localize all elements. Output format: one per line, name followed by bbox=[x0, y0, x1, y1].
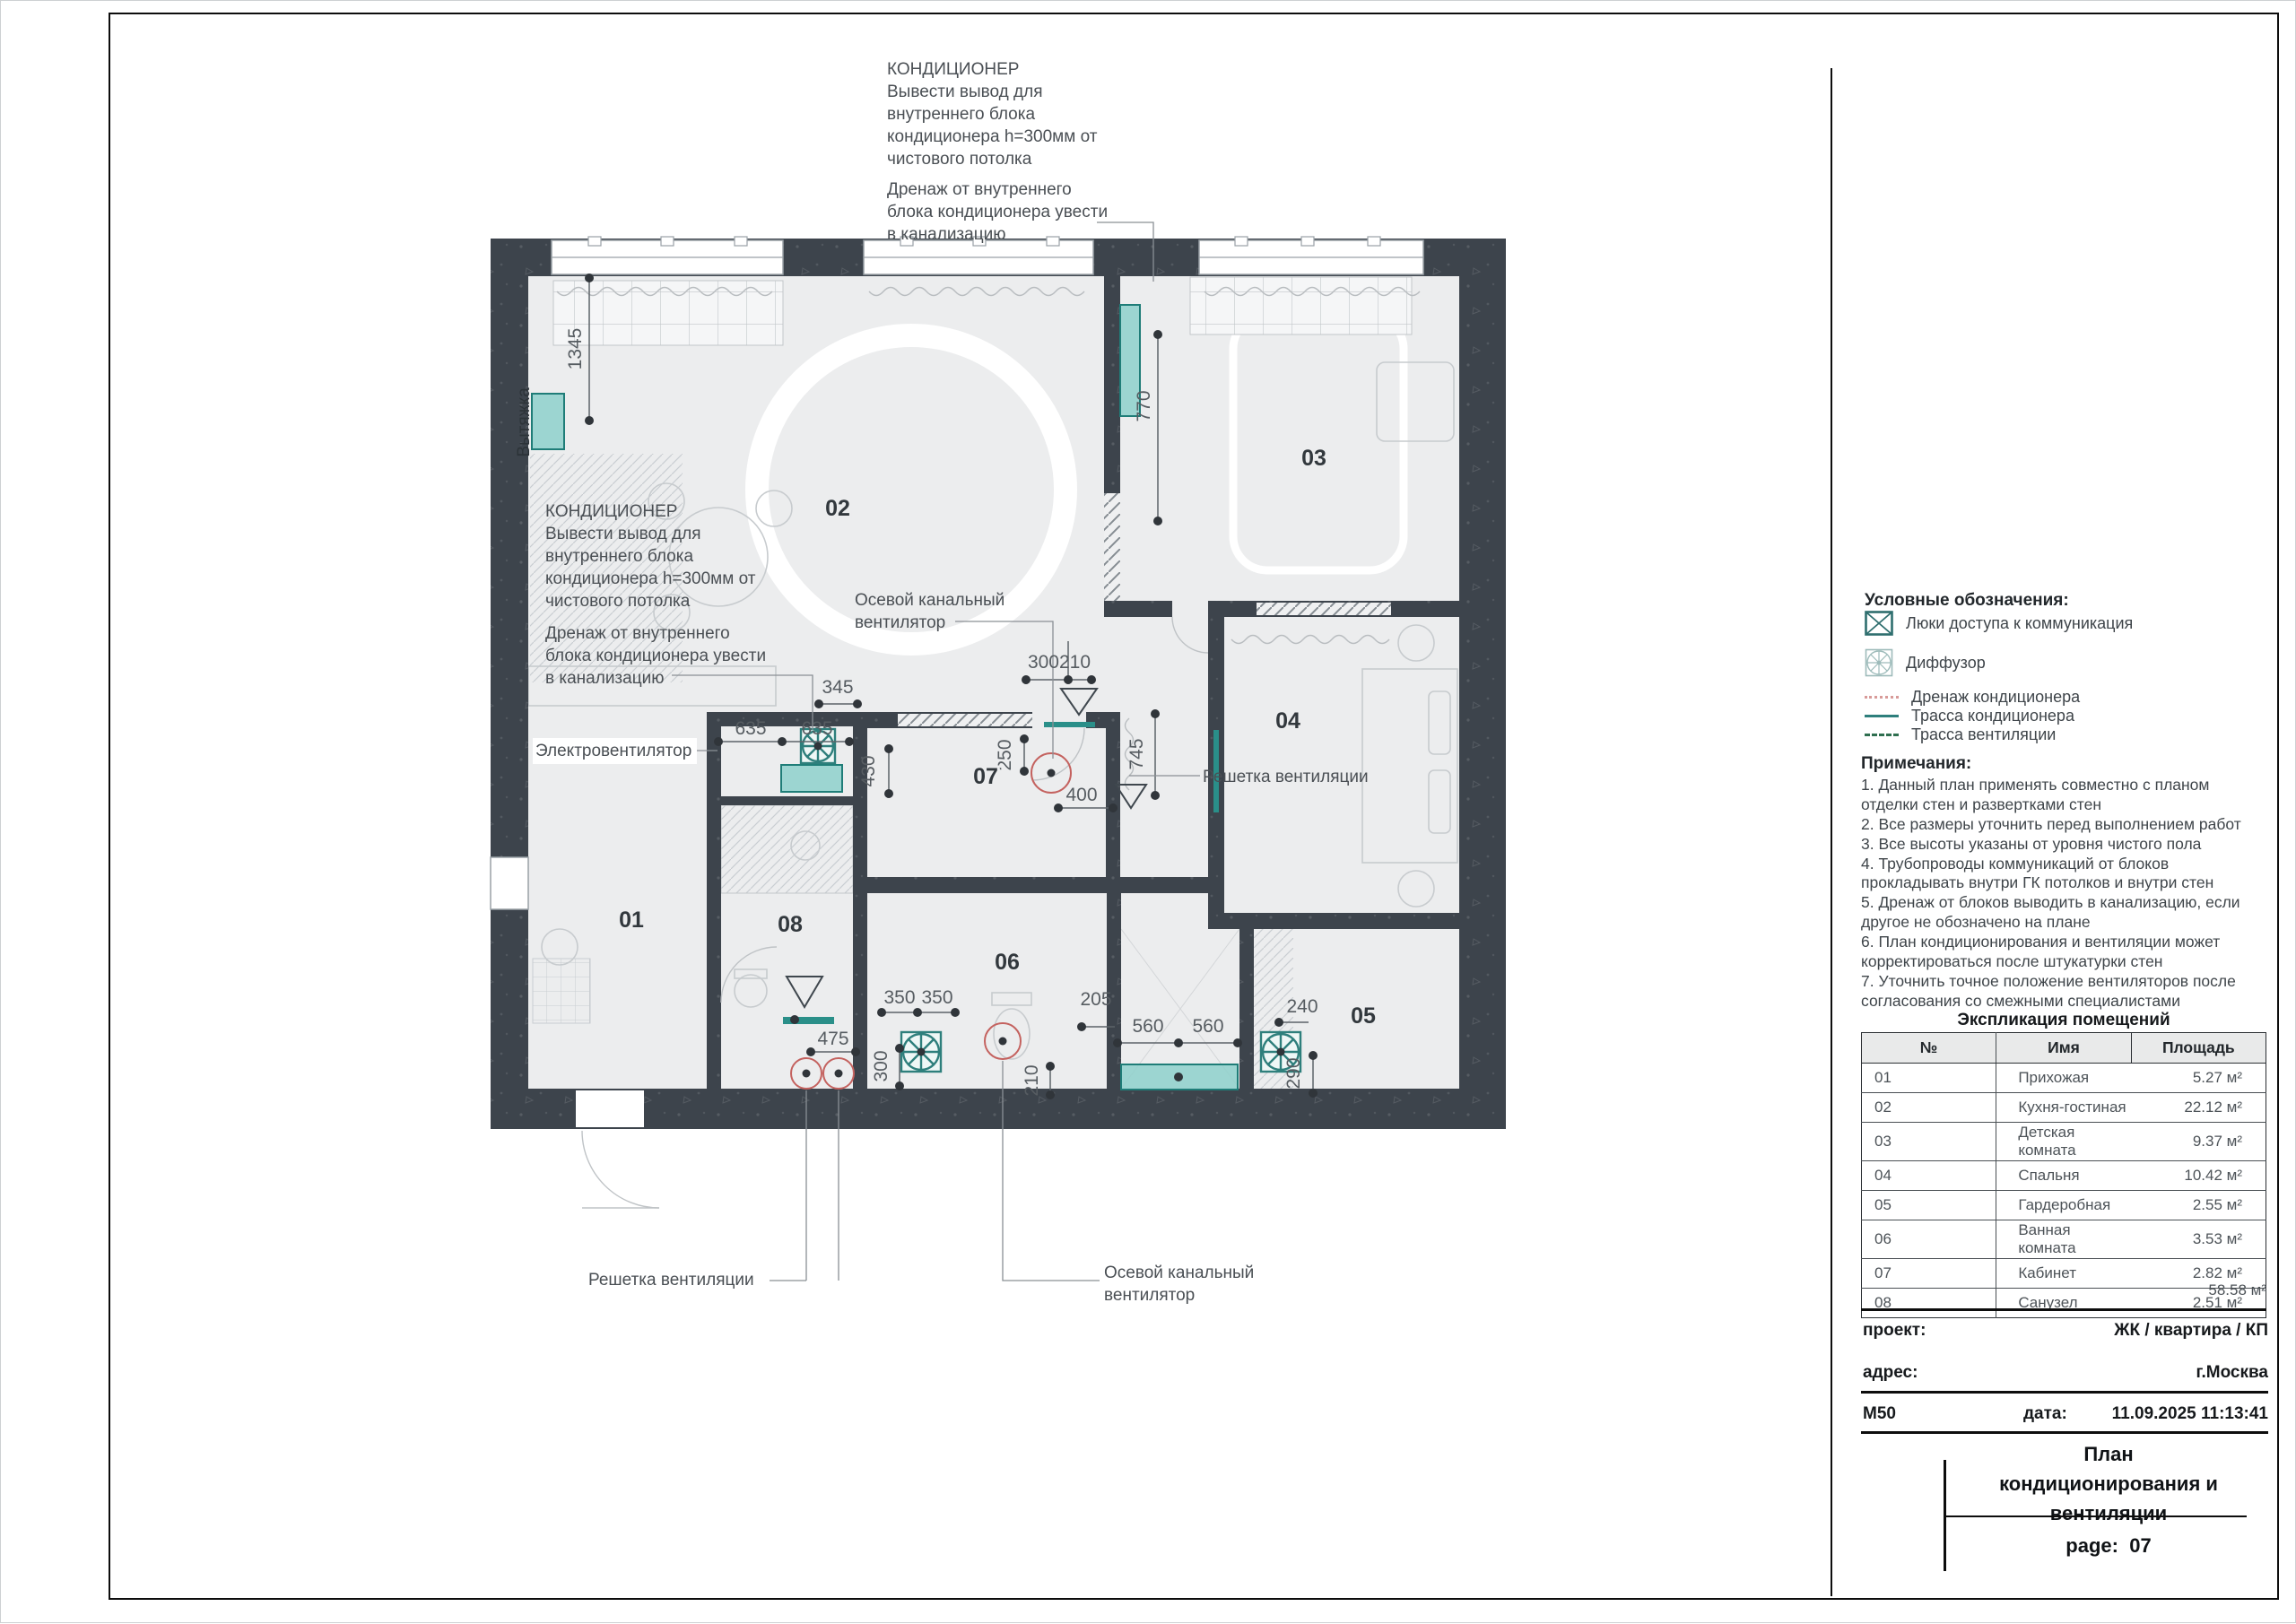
legend-item-diffuser: Диффузор bbox=[1865, 648, 1986, 677]
cell-area: 3.53 м² bbox=[2131, 1220, 2266, 1259]
legend-label: Дренаж кондиционера bbox=[1911, 688, 2080, 707]
cell-area: 22.12 м² bbox=[2131, 1093, 2266, 1123]
access-hatch-icon bbox=[1865, 611, 1893, 636]
cell-name: Кухня-гостиная bbox=[1996, 1093, 2131, 1123]
titleblock-line-2 bbox=[1861, 1431, 2268, 1434]
table-row: 04Спальня10.42 м² bbox=[1862, 1161, 2266, 1191]
drain-line-sample bbox=[1865, 696, 1899, 699]
project-value: ЖК / квартира / КП bbox=[1863, 1321, 2268, 1341]
page-label: page: bbox=[2066, 1534, 2118, 1557]
legend-label: Диффузор bbox=[1906, 654, 1986, 673]
table-row: 06Ванная комната3.53 м² bbox=[1862, 1220, 2266, 1259]
cell-name: Спальня bbox=[1996, 1161, 2131, 1191]
cell-area: 5.27 м² bbox=[2131, 1064, 2266, 1093]
ac-route-line-sample bbox=[1865, 715, 1899, 717]
legend-item-vent-route: Трасса вентиляции bbox=[1865, 725, 2056, 744]
table-row: 03Детская комната9.37 м² bbox=[1862, 1123, 2266, 1161]
table-row: 02Кухня-гостиная22.12 м² bbox=[1862, 1093, 2266, 1123]
vent-route-line-sample bbox=[1865, 734, 1899, 736]
table-row: 01Прихожая5.27 м² bbox=[1862, 1064, 2266, 1093]
room-table-heading: Экспликация помещений bbox=[1861, 1011, 2266, 1030]
legend-item-access-hatch: Люки доступа к коммуникация bbox=[1865, 611, 2133, 636]
date-value: 11.09.2025 11:13:41 bbox=[1863, 1404, 2268, 1424]
cell-name: Гардеробная bbox=[1996, 1191, 2131, 1220]
page-row: page: 07 bbox=[1947, 1531, 2270, 1560]
cell-num: 02 bbox=[1862, 1093, 1996, 1123]
cell-num: 04 bbox=[1862, 1161, 1996, 1191]
address-value: г.Москва bbox=[1863, 1363, 2268, 1383]
table-row: 05Гардеробная2.55 м² bbox=[1862, 1191, 2266, 1220]
notes-heading: Примечания: bbox=[1861, 754, 1971, 774]
table-total-divider bbox=[1861, 1308, 2266, 1311]
page-number: 07 bbox=[2129, 1534, 2151, 1557]
titleblock-line-1 bbox=[1861, 1391, 2268, 1394]
legend-item-drain: Дренаж кондиционера bbox=[1865, 688, 2080, 707]
table-header-row: № Имя Площадь bbox=[1862, 1033, 2266, 1064]
col-name: Имя bbox=[1996, 1033, 2131, 1064]
cell-name: Прихожая bbox=[1996, 1064, 2131, 1093]
panel-divider-line bbox=[1831, 68, 1832, 1596]
room-table: № Имя Площадь 01Прихожая5.27 м² 02Кухня-… bbox=[1861, 1032, 2266, 1318]
legend-heading: Условные обозначения: bbox=[1865, 591, 2069, 611]
cell-area: 9.37 м² bbox=[2131, 1123, 2266, 1161]
cell-name: Детская комната bbox=[1996, 1123, 2131, 1161]
legend-label: Трасса вентиляции bbox=[1911, 725, 2056, 744]
diffuser-icon bbox=[1865, 648, 1893, 677]
cell-area: 2.55 м² bbox=[2131, 1191, 2266, 1220]
legend-label: Люки доступа к коммуникация bbox=[1906, 614, 2133, 633]
drawing-sheet: { "colors":{"wall":"#3d444c","floor":"#e… bbox=[0, 0, 2296, 1623]
cell-num: 01 bbox=[1862, 1064, 1996, 1093]
notes-text: 1. Данный план применять совместно с пла… bbox=[1861, 776, 2283, 1012]
title-underline bbox=[1945, 1515, 2247, 1517]
legend-label: Трасса кондиционера bbox=[1911, 707, 2074, 725]
cell-name: Ванная комната bbox=[1996, 1220, 2131, 1259]
legend-item-ac-route: Трасса кондиционера bbox=[1865, 707, 2074, 725]
col-area: Площадь bbox=[2131, 1033, 2266, 1064]
table-total-area: 58.58 м² bbox=[1861, 1281, 2290, 1299]
cell-num: 06 bbox=[1862, 1220, 1996, 1259]
cell-num: 05 bbox=[1862, 1191, 1996, 1220]
col-number: № bbox=[1862, 1033, 1996, 1064]
cell-num: 03 bbox=[1862, 1123, 1996, 1161]
cell-area: 10.42 м² bbox=[2131, 1161, 2266, 1191]
